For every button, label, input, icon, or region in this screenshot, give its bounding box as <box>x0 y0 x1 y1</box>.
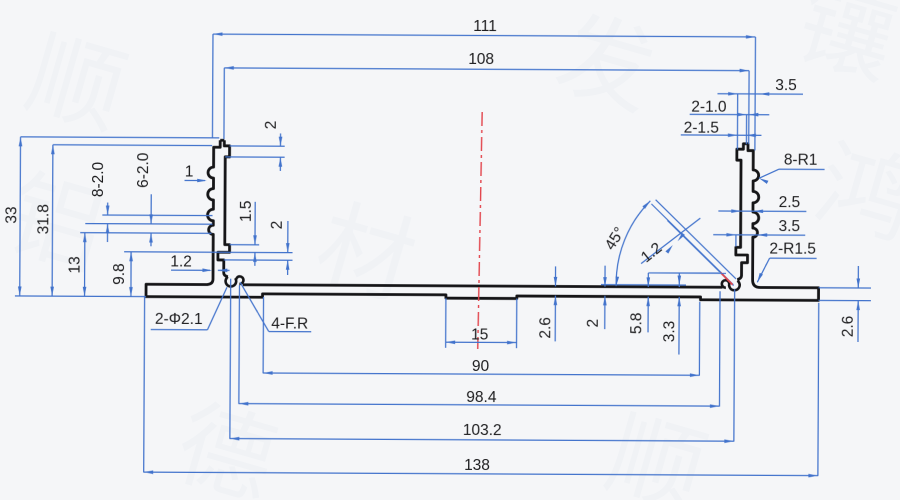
svg-text:45°: 45° <box>602 224 629 253</box>
svg-text:2-Φ2.1: 2-Φ2.1 <box>155 311 203 328</box>
svg-text:1.5: 1.5 <box>238 200 255 222</box>
svg-text:8-2.0: 8-2.0 <box>90 161 107 197</box>
svg-text:德: 德 <box>166 390 287 500</box>
svg-text:5.8: 5.8 <box>628 312 645 334</box>
svg-text:103.2: 103.2 <box>463 422 502 439</box>
svg-text:9.8: 9.8 <box>111 263 128 285</box>
svg-text:138: 138 <box>464 457 490 474</box>
svg-text:1: 1 <box>185 163 194 180</box>
svg-text:2.6: 2.6 <box>840 316 857 338</box>
svg-text:3.3: 3.3 <box>661 321 678 343</box>
svg-text:2-1.0: 2-1.0 <box>691 99 727 116</box>
svg-text:8-R1: 8-R1 <box>784 152 818 169</box>
svg-text:顺: 顺 <box>596 400 717 500</box>
svg-text:发: 发 <box>546 0 667 128</box>
svg-text:108: 108 <box>468 51 494 68</box>
svg-text:13: 13 <box>67 256 84 273</box>
svg-text:镶: 镶 <box>786 0 900 98</box>
svg-text:4-F.R: 4-F.R <box>271 315 308 332</box>
svg-text:33: 33 <box>3 206 20 223</box>
svg-text:111: 111 <box>473 18 497 35</box>
svg-text:1.2: 1.2 <box>170 253 192 270</box>
svg-text:2.6: 2.6 <box>537 317 554 339</box>
svg-text:2.5: 2.5 <box>779 194 801 211</box>
svg-text:2-R1.5: 2-R1.5 <box>769 241 816 258</box>
svg-text:31.8: 31.8 <box>35 204 52 234</box>
svg-text:90: 90 <box>472 358 490 375</box>
svg-text:6-2.0: 6-2.0 <box>135 152 152 188</box>
svg-text:15: 15 <box>471 327 488 344</box>
svg-text:2: 2 <box>263 121 280 130</box>
svg-text:2-1.5: 2-1.5 <box>684 120 719 137</box>
svg-text:鸿: 鸿 <box>806 130 900 258</box>
svg-text:98.4: 98.4 <box>466 389 497 406</box>
svg-text:材: 材 <box>306 190 427 318</box>
svg-text:3.5: 3.5 <box>775 77 797 94</box>
svg-text:2: 2 <box>269 221 286 230</box>
svg-text:3.5: 3.5 <box>778 218 800 235</box>
svg-text:2: 2 <box>585 319 602 328</box>
svg-text:顺: 顺 <box>16 20 137 148</box>
